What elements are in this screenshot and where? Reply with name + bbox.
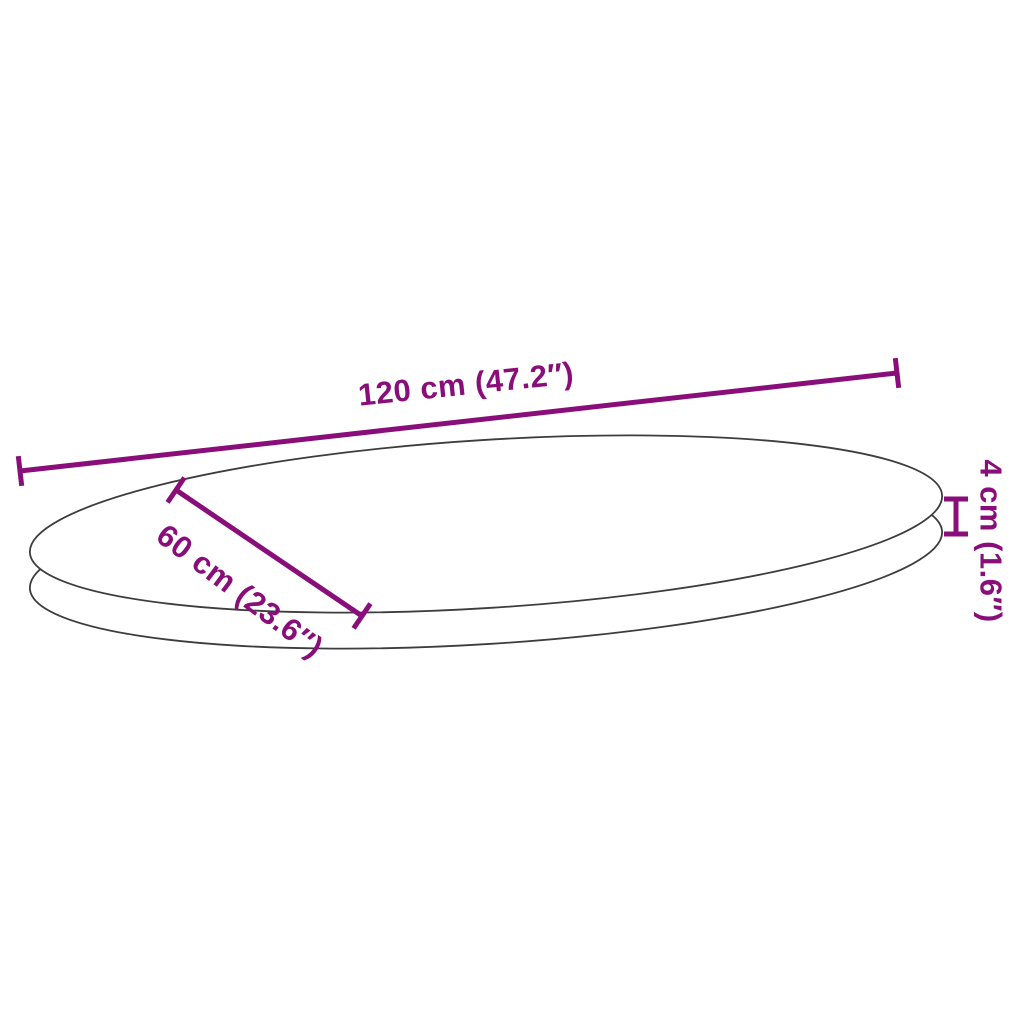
length-dimension-label: 120 cm (47.2″) — [356, 355, 575, 412]
thickness-dimension-label: 4 cm (1.6″) — [974, 459, 1009, 622]
dimension-diagram-page: 120 cm (47.2″) 60 cm (23.6″) 4 cm (1.6″) — [0, 0, 1024, 1024]
length-dimension-tick-right — [895, 358, 898, 388]
thickness-dimension — [944, 499, 968, 534]
tabletop-top-face — [25, 411, 948, 636]
length-dimension-tick-left — [18, 456, 21, 486]
oval-tabletop-dimension-diagram: 120 cm (47.2″) 60 cm (23.6″) 4 cm (1.6″) — [0, 0, 1024, 1024]
